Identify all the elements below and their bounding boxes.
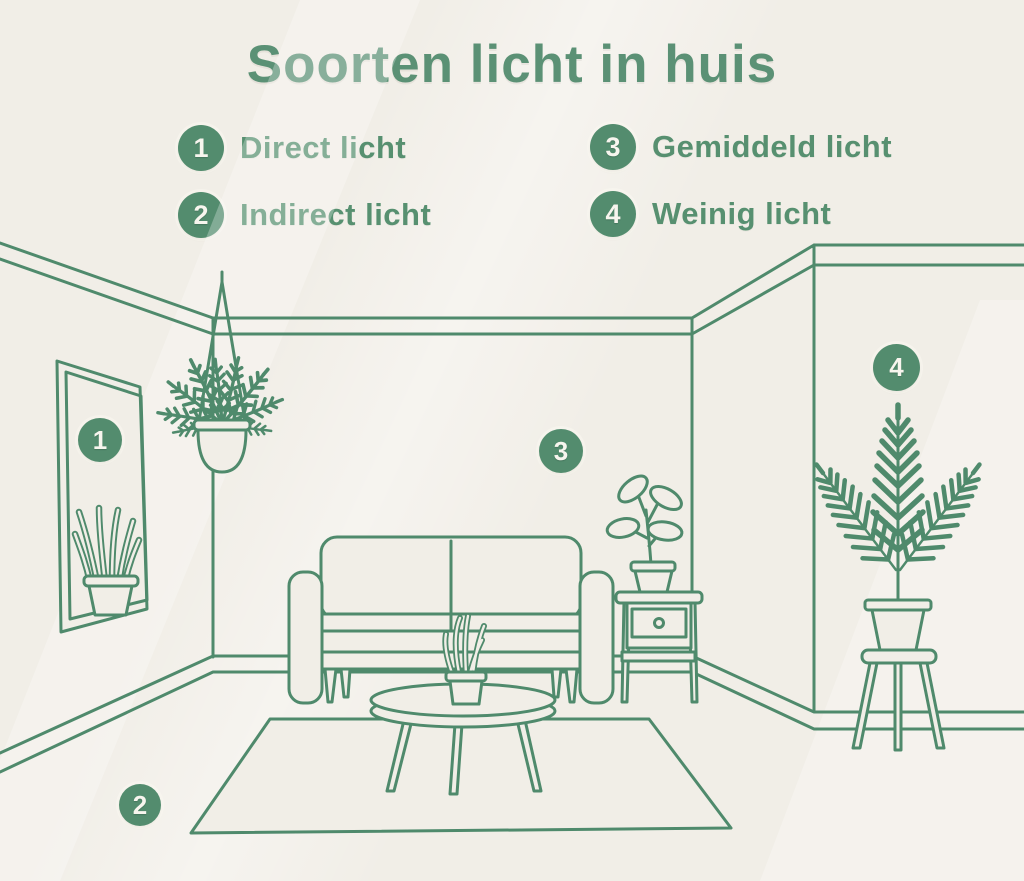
- room-marker-2: 2: [119, 784, 161, 826]
- room-illustration: [0, 0, 1024, 881]
- room-marker-3: 3: [539, 429, 583, 473]
- side-table-plant: [605, 471, 685, 592]
- side-table: [616, 592, 702, 702]
- room-marker-1: 1: [78, 418, 122, 462]
- infographic-page: Soorten licht in huis 1 Direct licht 2 I…: [0, 0, 1024, 881]
- room-marker-4: 4: [873, 344, 920, 391]
